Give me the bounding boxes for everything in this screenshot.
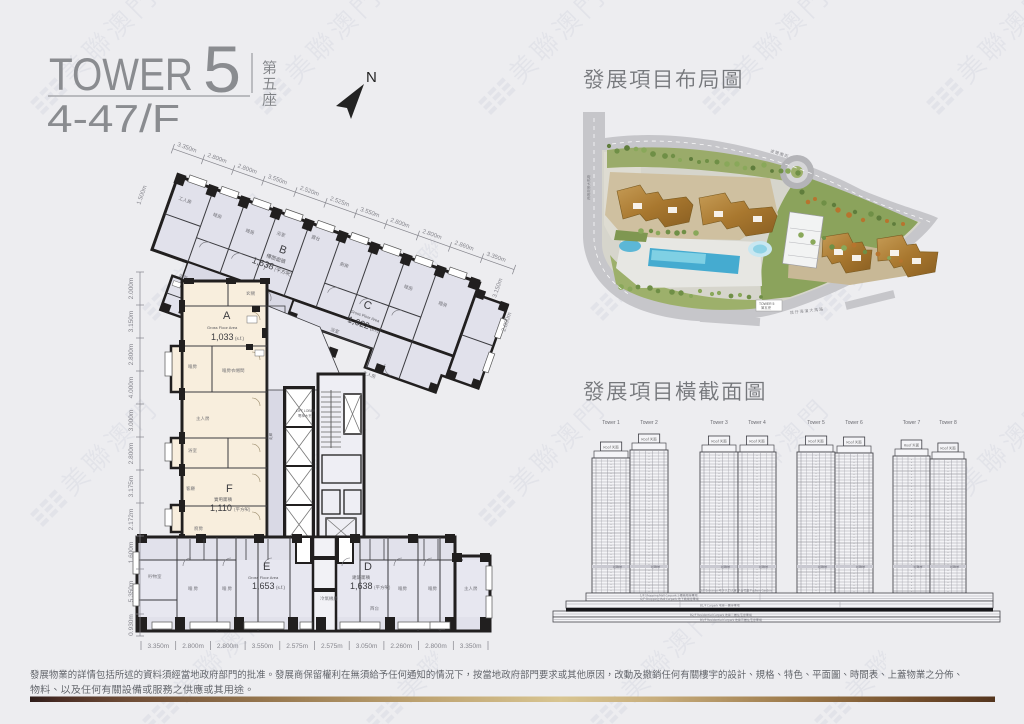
svg-text:Tower 4: Tower 4 [748,420,766,426]
svg-text:Gross Floor Area: Gross Floor Area [207,325,238,330]
svg-text:Tower 2: Tower 2 [640,420,658,426]
svg-text:3.550m: 3.550m [252,643,274,650]
svg-text:2.800m: 2.800m [182,643,204,650]
svg-text:2.800m: 2.800m [425,643,447,650]
svg-text:A: A [223,310,231,322]
svg-text:4-47/F: 4-47/F [47,98,180,141]
svg-text:3.350m: 3.350m [148,643,170,650]
svg-text:Tower 3: Tower 3 [710,420,728,426]
svg-text:Tower 1: Tower 1 [602,420,620,426]
svg-text:E: E [263,561,270,573]
svg-text:F: F [226,483,233,495]
svg-text:D: D [364,561,372,573]
svg-text:TOWER: TOWER [49,49,193,100]
svg-text:N: N [366,69,377,86]
svg-text:(s.f.): (s.f.) [276,585,285,590]
svg-text:LIFT LOBBY: LIFT LOBBY [296,409,316,413]
svg-text:3.050m: 3.050m [356,643,378,650]
svg-text:5: 5 [203,32,241,106]
svg-text:3.000m: 3.000m [128,410,135,432]
svg-text:3.175m: 3.175m [128,476,135,498]
svg-text:1,033: 1,033 [211,332,234,342]
svg-text:5.350m: 5.350m [128,581,135,603]
svg-text:Tower 6: Tower 6 [845,420,863,426]
svg-text:2.000m: 2.000m [128,278,135,300]
svg-text:2.575m: 2.575m [321,643,343,650]
svg-text:4.000m: 4.000m [128,377,135,399]
svg-text:2.800m: 2.800m [128,443,135,465]
svg-text:2.172m: 2.172m [128,509,135,531]
svg-text:1,638: 1,638 [350,581,373,591]
svg-text:Tower 8: Tower 8 [939,420,957,426]
svg-text:(s.f.): (s.f.) [235,336,244,341]
svg-text:3.150m: 3.150m [128,311,135,333]
svg-text:1,653: 1,653 [252,581,275,591]
svg-text:Tower 5: Tower 5 [807,420,825,426]
svg-text:Gross Floor Area: Gross Floor Area [248,575,279,580]
svg-text:3.350m: 3.350m [460,643,482,650]
svg-text:2.575m: 2.575m [286,643,308,650]
svg-text:1.600m: 1.600m [128,542,135,564]
svg-text:2.800m: 2.800m [128,344,135,366]
svg-text:2.260m: 2.260m [390,643,412,650]
svg-text:0.930m: 0.930m [128,614,135,636]
svg-text:TOWER 5: TOWER 5 [759,302,774,306]
svg-text:2.800m: 2.800m [217,643,239,650]
svg-text:1,110: 1,110 [210,503,232,513]
svg-text:Tower 7: Tower 7 [903,420,921,426]
